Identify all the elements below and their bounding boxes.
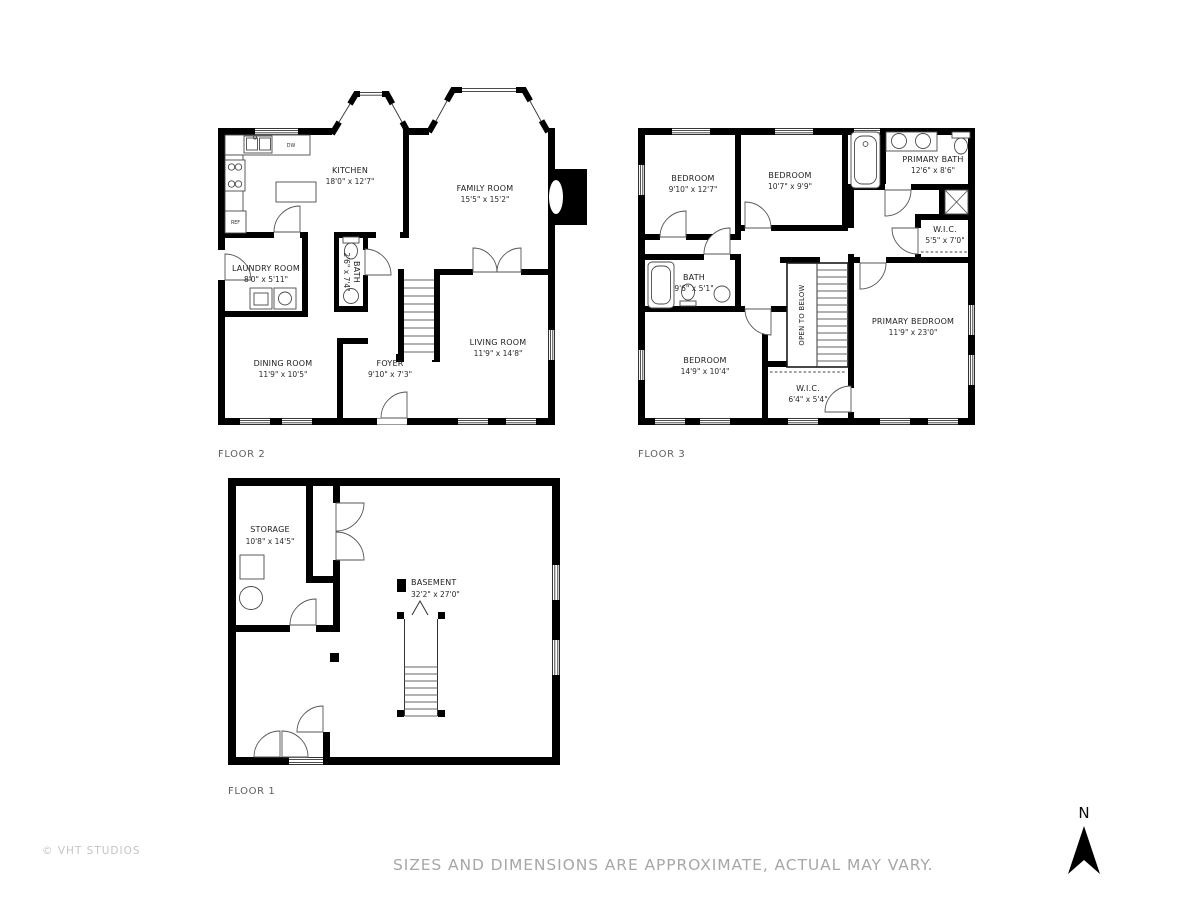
floor2-laundry-fixtures — [250, 288, 296, 309]
kitchen-dims: 18'0" x 12'7" — [326, 177, 375, 186]
floor2-kitchen-fixtures: DW REF — [225, 135, 316, 233]
kitchen-island — [276, 182, 316, 202]
floor2-plan: DW REF — [210, 85, 600, 435]
basement-dims: 32'2" x 27'0" — [411, 590, 460, 599]
wic2-dims: 6'4" x 5'4" — [788, 395, 827, 404]
floor1-stairs-icon — [405, 601, 438, 716]
washer-icon — [250, 288, 272, 309]
north-arrow-icon — [1068, 826, 1100, 874]
foyer-dims: 9'10" x 7'3" — [368, 370, 412, 379]
laundry-room-dims: 8'0" x 5'11" — [244, 275, 288, 284]
bath3-dims: 9'6" x 5'1" — [674, 284, 713, 293]
bedroom3-label: BEDROOM — [683, 356, 726, 365]
family-room-dims: 15'5" x 15'2" — [461, 195, 510, 204]
floor2-caption: FLOOR 2 — [218, 449, 265, 460]
floor3-plan: OPEN TO BELOW BEDROOM 9'10" x 12'7" BEDR… — [630, 120, 990, 440]
furnace-icon — [240, 555, 264, 579]
dimensions-disclaimer: SIZES AND DIMENSIONS ARE APPROXIMATE, AC… — [393, 856, 933, 874]
toilet-icon — [952, 132, 970, 138]
water-tank-icon — [240, 587, 263, 610]
floor1-fixtures — [240, 555, 265, 610]
primary-bedroom-label: PRIMARY BEDROOM — [872, 317, 954, 326]
floor1-labels: STORAGE 10'8" x 14'5" BASEMENT 32'2" x 2… — [246, 525, 460, 599]
kitchen-label: KITCHEN — [332, 166, 368, 175]
vanity-counter — [886, 132, 937, 151]
range-icon — [225, 160, 245, 191]
open-to-below-label: OPEN TO BELOW — [798, 284, 806, 345]
bedroom1-dims: 9'10" x 12'7" — [669, 185, 718, 194]
dryer-icon — [274, 288, 296, 309]
wic1-dims: 5'5" x 7'0" — [925, 236, 964, 245]
primary-bath-dims: 12'6" x 8'6" — [911, 166, 955, 175]
foyer-label: FOYER — [377, 359, 404, 368]
bedroom2-label: BEDROOM — [768, 171, 811, 180]
north-compass: N — [1058, 798, 1110, 884]
bedroom1-label: BEDROOM — [671, 174, 714, 183]
bath2-dims: 2'6" x 7'4" — [342, 252, 351, 291]
north-label: N — [1078, 804, 1089, 822]
dishwasher-label: DW — [287, 143, 296, 149]
wic2-label: W.I.C. — [796, 384, 820, 393]
stairs-direction-arrow — [412, 601, 428, 615]
bedroom3-dims: 14'9" x 10'4" — [681, 367, 730, 376]
primary-bedroom-dims: 11'9" x 23'0" — [889, 328, 938, 337]
sink-icon — [714, 286, 730, 302]
dining-room-dims: 11'9" x 10'5" — [259, 370, 308, 379]
laundry-room-label: LAUNDRY ROOM — [232, 264, 300, 273]
bath2-label: BATH — [352, 261, 361, 283]
family-room-label: FAMILY ROOM — [457, 184, 514, 193]
storage-dims: 10'8" x 14'5" — [246, 537, 295, 546]
living-room-dims: 11'9" x 14'8" — [474, 349, 523, 358]
primary-bath-label: PRIMARY BATH — [902, 155, 963, 164]
refrigerator-label: REF — [231, 220, 240, 226]
floorplan-page: DW REF — [0, 0, 1200, 900]
basement-bullet — [397, 579, 406, 592]
floor2-stairs-icon — [404, 272, 434, 360]
floor2-bay-windows — [332, 87, 548, 134]
wic1-label: W.I.C. — [933, 225, 957, 234]
studio-copyright: © VHT STUDIOS — [42, 845, 141, 857]
floor1-plan: STORAGE 10'8" x 14'5" BASEMENT 32'2" x 2… — [220, 470, 570, 770]
floor1-walls — [228, 478, 560, 765]
floor3-stairs-icon: OPEN TO BELOW — [787, 263, 848, 367]
bedroom2-dims: 10'7" x 9'9" — [768, 182, 812, 191]
dining-room-label: DINING ROOM — [254, 359, 313, 368]
basement-label: BASEMENT — [411, 578, 457, 587]
living-room-label: LIVING ROOM — [470, 338, 527, 347]
floor3-caption: FLOOR 3 — [638, 449, 685, 460]
floor1-caption: FLOOR 1 — [228, 786, 275, 797]
toilet-icon — [343, 237, 359, 243]
storage-label: STORAGE — [250, 525, 289, 534]
bath3-label: BATH — [683, 273, 705, 282]
